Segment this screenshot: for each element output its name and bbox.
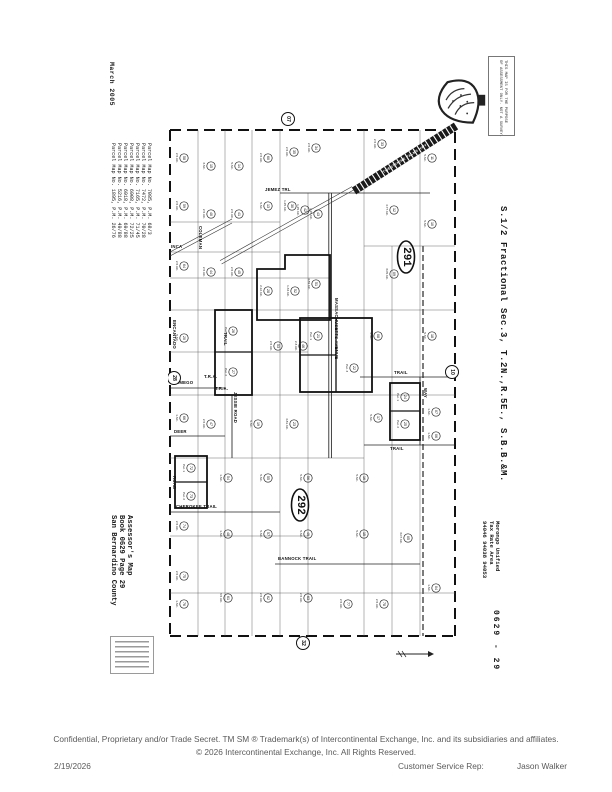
disclaimer-line: THIS MAP IS FOR THE PURPOSE — [502, 60, 507, 130]
street-label: BANNOCK TRAIL — [278, 556, 317, 561]
parcel-number: 16 — [362, 476, 366, 480]
parcel-acreage: 1 AC. — [427, 584, 431, 592]
parcel-number: 08 — [376, 334, 380, 338]
parcel-acreage: Par. 1 — [182, 464, 186, 472]
parcel-number: 64 — [182, 264, 186, 268]
parcel-number: 72 — [189, 466, 193, 470]
parcel-acreage: 5 AC. — [355, 530, 359, 538]
assessor-map-line: San Bernardino County — [108, 515, 116, 615]
parcel-acreage: 5 AC. — [299, 530, 303, 538]
parcel-number: 51 — [314, 282, 318, 286]
parcel-acreage: 2.3 AC. — [294, 341, 298, 351]
parcel-number: 27 — [231, 370, 235, 374]
parcel-acreage: 4.89 AC. — [307, 278, 311, 290]
parcel-number: 35 — [292, 150, 296, 154]
parcel-number: 49 — [306, 532, 310, 536]
parcel-map-reference: Parcel Map No. 1895, P.M. 26/76 — [110, 143, 116, 233]
parcel-acreage: 2.5 AC. — [339, 599, 343, 609]
parcel-acreage: 3.05 AC. — [385, 268, 389, 280]
parcel-acreage: Par. 1 — [309, 332, 313, 340]
parcel-acreage: 5 AC. — [423, 220, 427, 228]
parcel-map-reference: Parcel Map No. 6918, P.M. 69/88 — [122, 143, 128, 233]
parcel-acreage: 3.5 AC. — [219, 593, 223, 603]
parcel-number: 77 — [346, 602, 350, 606]
street-label: JEMEZ TRL — [265, 187, 291, 192]
assessor-map-title-block: Assessor's Map Book 0629 Page 29 San Ber… — [108, 515, 133, 615]
street-label: TRAIL — [390, 446, 404, 451]
detail-page-number: 292 — [294, 495, 306, 515]
parcel-acreage: Par. 2 — [182, 492, 186, 500]
print-date: 2/19/2026 — [54, 761, 91, 771]
parcel-number: 22 — [352, 366, 356, 370]
parcel-number: 25 — [403, 422, 407, 426]
parcel-number: 47 — [209, 422, 213, 426]
parcel-acreage: 2.5 AC. — [230, 267, 234, 277]
parcel-acreage: 5 AC. — [259, 474, 263, 482]
parcel-acreage: Par. 1 — [396, 393, 400, 401]
parcel-number: 21 — [316, 334, 320, 338]
north-arrow-icon — [396, 651, 434, 657]
parcel-acreage: 5 AC. — [259, 530, 263, 538]
parcel-acreage: 2.5 AC. — [175, 571, 179, 581]
parcel-number: 19 — [256, 422, 260, 426]
parcel-number: 07 — [434, 410, 438, 414]
parcel-acreage: 2.5 AC. — [202, 419, 206, 429]
parcel-number: 78 — [382, 602, 386, 606]
parcel-acreage: 2.5 AC. — [230, 209, 234, 219]
parcel-acreage: 2.12 AC. — [259, 285, 263, 297]
parcel-acreage: 2.5 AC. — [175, 521, 179, 531]
parcel-acreage: 2.5 AC. — [259, 593, 263, 603]
disclaimer-line: OF ASSESSMENT ONLY. NOT A SURVEY. — [498, 60, 503, 130]
parcel-acreage: 5 AC. — [299, 474, 303, 482]
adjacent-page-number: 07 — [285, 116, 291, 122]
map-disclaimer-text: THIS MAP IS FOR THE PURPOSE OF ASSESSMEN… — [498, 60, 507, 130]
parcel-number: 40 — [209, 212, 213, 216]
street-label: T.R.A. — [204, 374, 217, 379]
tax-rate-line: 94046 94038 94053 — [481, 521, 487, 591]
parcel-number: 60 — [266, 156, 270, 160]
parcel-number: 12 — [392, 208, 396, 212]
parcel-number: 26 — [231, 329, 235, 333]
parcel-acreage: 2.5 AC. — [202, 209, 206, 219]
parcel-number: 53 — [276, 344, 280, 348]
assessor-map-line: Assessor's Map — [125, 515, 133, 615]
parcel-acreage: 1.25 AC. — [309, 208, 313, 220]
parcel-number: 48 — [226, 532, 230, 536]
street-label: MASSACHUSETTS AVENUE — [334, 298, 339, 359]
parcel-number: 06 — [434, 434, 438, 438]
parcel-map-reference: Parcel Map No. 5216, P.M. 49/88 — [116, 143, 122, 233]
parcel-number: 46 — [301, 344, 305, 348]
parcel-acreage: 5 AC. — [369, 332, 373, 340]
parcel-acreage: 2.5 AC. — [285, 147, 289, 157]
parcel-number: 66 — [182, 416, 186, 420]
parcel-number: 15 — [209, 164, 213, 168]
street-label: T.R.A. — [215, 386, 228, 391]
parcel-number: 61 — [226, 596, 230, 600]
parcel-number: 45 — [237, 270, 241, 274]
parcel-map-reference-list: Parcel Map No. 7085, P.M. 68/3 Parcel Ma… — [110, 143, 152, 233]
parcel-number: 17 — [376, 416, 380, 420]
parcel-number: 13 — [266, 204, 270, 208]
parcel-map-svg: TWENTYNINE PALMS HWYJEMEZ TRLTRAILTRAILW… — [168, 106, 460, 666]
scan-date-stamp: March 2005 — [108, 62, 115, 106]
assessor-map-line: Book 0629 Page 29 — [117, 515, 125, 615]
parcel-acreage: 2.5 AC. — [373, 139, 377, 149]
parcel-number: 10 — [430, 222, 434, 226]
parcel-number: 63 — [306, 596, 310, 600]
parcel-number: 30 — [290, 204, 294, 208]
parcel-number: 75 — [182, 574, 186, 578]
parcel-number: 56 — [306, 476, 310, 480]
parcel-acreage: 2.5 AC. — [269, 341, 273, 351]
street-label: INCA — [171, 244, 182, 249]
parcel-acreage: 1.25 AC. — [283, 200, 287, 212]
parcel-acreage: 5 AC. — [259, 202, 263, 210]
revision-note-box — [110, 636, 154, 674]
parcel-number: 05 — [406, 536, 410, 540]
parcel-number: 20 — [182, 336, 186, 340]
parcel-acreage: 5 AC. — [249, 420, 253, 428]
parcel-acreage: Par. 1 — [224, 327, 228, 335]
parcel-number: 43 — [316, 212, 320, 216]
parcel-acreage: 2.5 AC. — [259, 153, 263, 163]
street-label: DEER — [174, 429, 187, 434]
parcel-number: 18 — [430, 334, 434, 338]
footer-confidentiality-line: Confidential, Proprietary and/or Trade S… — [0, 734, 612, 744]
parcel-acreage: Par. 2 — [224, 368, 228, 376]
parcel-number: 52 — [293, 289, 297, 293]
parcel-acreage: 2.5 AC. — [175, 153, 179, 163]
street-label: CHEROKEE TRAIL — [176, 504, 217, 509]
csr-label: Customer Service Rep: — [398, 761, 484, 771]
parcel-acreage: 5 AC. — [175, 334, 179, 342]
parcel-acreage: 5 AC. — [369, 414, 373, 422]
parcel-number: 62 — [266, 596, 270, 600]
detail-page-number: 291 — [400, 247, 412, 267]
csr-name: Jason Walker — [517, 761, 567, 771]
parcel-acreage: 1 AC. — [219, 530, 223, 538]
parcel-acreage: 2.5 AC. — [175, 261, 179, 271]
footer-copyright-line: © 2026 Intercontinental Exchange, Inc. A… — [0, 747, 612, 757]
parcel-acreage: 1 AC. — [175, 414, 179, 422]
parcel-number: 44 — [209, 270, 213, 274]
parcel-number: 57 — [266, 532, 270, 536]
parcel-number: 11 — [430, 156, 434, 160]
street-label: TRAIL — [394, 370, 408, 375]
parcel-acreage: 5 AC. — [423, 332, 427, 340]
revision-note-lines — [115, 641, 149, 669]
parcel-map-reference: Parcel Map No. 6908, P.M. 72/25 — [128, 143, 134, 233]
street-label: WAY — [423, 388, 428, 398]
adjacent-page-number: 32 — [300, 640, 306, 646]
book-page-code: 0629 - 29 — [491, 610, 500, 662]
parcel-acreage: Par. 2 — [396, 420, 400, 428]
parcel-acreage: 5 AC. — [423, 154, 427, 162]
parcel-acreage: 4.81 AC. — [285, 418, 289, 430]
parcel-map-reference: Parcel Map No. 7085, P.M. 68/3 — [146, 143, 152, 233]
parcel-acreage: 1 AC. — [175, 600, 179, 608]
parcel-number: 33 — [380, 142, 384, 146]
parcel-number: 34 — [314, 146, 318, 150]
street-label: ROAD — [172, 476, 177, 489]
parcel-number: 28 — [266, 289, 270, 293]
street-label: JESSIE ROAD — [233, 392, 238, 423]
adjacent-page-number: 28 — [171, 375, 177, 381]
parcel-number: 58 — [182, 156, 186, 160]
section-title: S.1/2 Fractional Sec.3, T.2N.,R.5E., S.B… — [498, 206, 508, 462]
parcel-number: 42 — [303, 208, 307, 212]
parcel-acreage: 5 AC. — [230, 162, 234, 170]
parcel-acreage: 4.77 AC. — [385, 204, 389, 216]
parcel-number: 41 — [237, 212, 241, 216]
parcel-number: 73 — [189, 494, 193, 498]
parcel-acreage: 2.5 AC. — [299, 593, 303, 603]
parcel-acreage: 2.5 AC. — [175, 201, 179, 211]
parcel-number: 04 — [434, 586, 438, 590]
parcel-acreage: Par. 3 — [345, 364, 349, 372]
parcel-acreage: 2.5 AC. — [202, 267, 206, 277]
adjacent-page-number: 10 — [449, 369, 455, 375]
parcel-number: 76 — [182, 602, 186, 606]
parcel-number: 55 — [266, 476, 270, 480]
parcel-number: 15 — [362, 532, 366, 536]
parcel-number: 09 — [392, 272, 396, 276]
parcel-acreage: 3 AC. — [202, 162, 206, 170]
parcel-acreage: 2.5 AC. — [375, 599, 379, 609]
parcel-acreage: 5 AC. — [355, 474, 359, 482]
parcel-number: 74 — [182, 524, 186, 528]
parcel-number: 23 — [292, 422, 296, 426]
street-label: COLEMAN — [198, 226, 203, 249]
parcel-acreage: 2.5 AC. — [307, 143, 311, 153]
parcel-acreage: 1 AC. — [427, 408, 431, 416]
highway-label: TWENTYNINE PALMS HWY — [382, 143, 428, 174]
assessor-map-page: March 2005 Parcel Map No. 7085, P.M. 68/… — [0, 0, 612, 792]
parcel-number: 59 — [182, 204, 186, 208]
parcel-number: 24 — [403, 395, 407, 399]
tax-rate-line: Tax Rate Area — [487, 521, 493, 591]
parcel-number: 14 — [237, 164, 241, 168]
parcel-acreage: 1 AC. — [219, 474, 223, 482]
parcel-acreage: 3.07 AC. — [399, 532, 403, 544]
parcel-map-reference: Parcel Map No. 7472, P.M. 70/28 — [140, 143, 146, 233]
parcel-acreage: 1.34 AC. — [286, 285, 290, 297]
parcel-map-canvas: TWENTYNINE PALMS HWYJEMEZ TRLTRAILTRAILW… — [168, 106, 460, 666]
parcel-map-reference: Parcel Map No. 7165, P.M. 71/45 — [134, 143, 140, 233]
parcel-acreage: 1.25 AC. — [296, 204, 300, 216]
parcel-acreage: 1 AC. — [427, 432, 431, 440]
parcel-number: 54 — [226, 476, 230, 480]
tax-rate-area-block: Morongo Unified Tax Rate Area 94046 9403… — [481, 521, 500, 591]
